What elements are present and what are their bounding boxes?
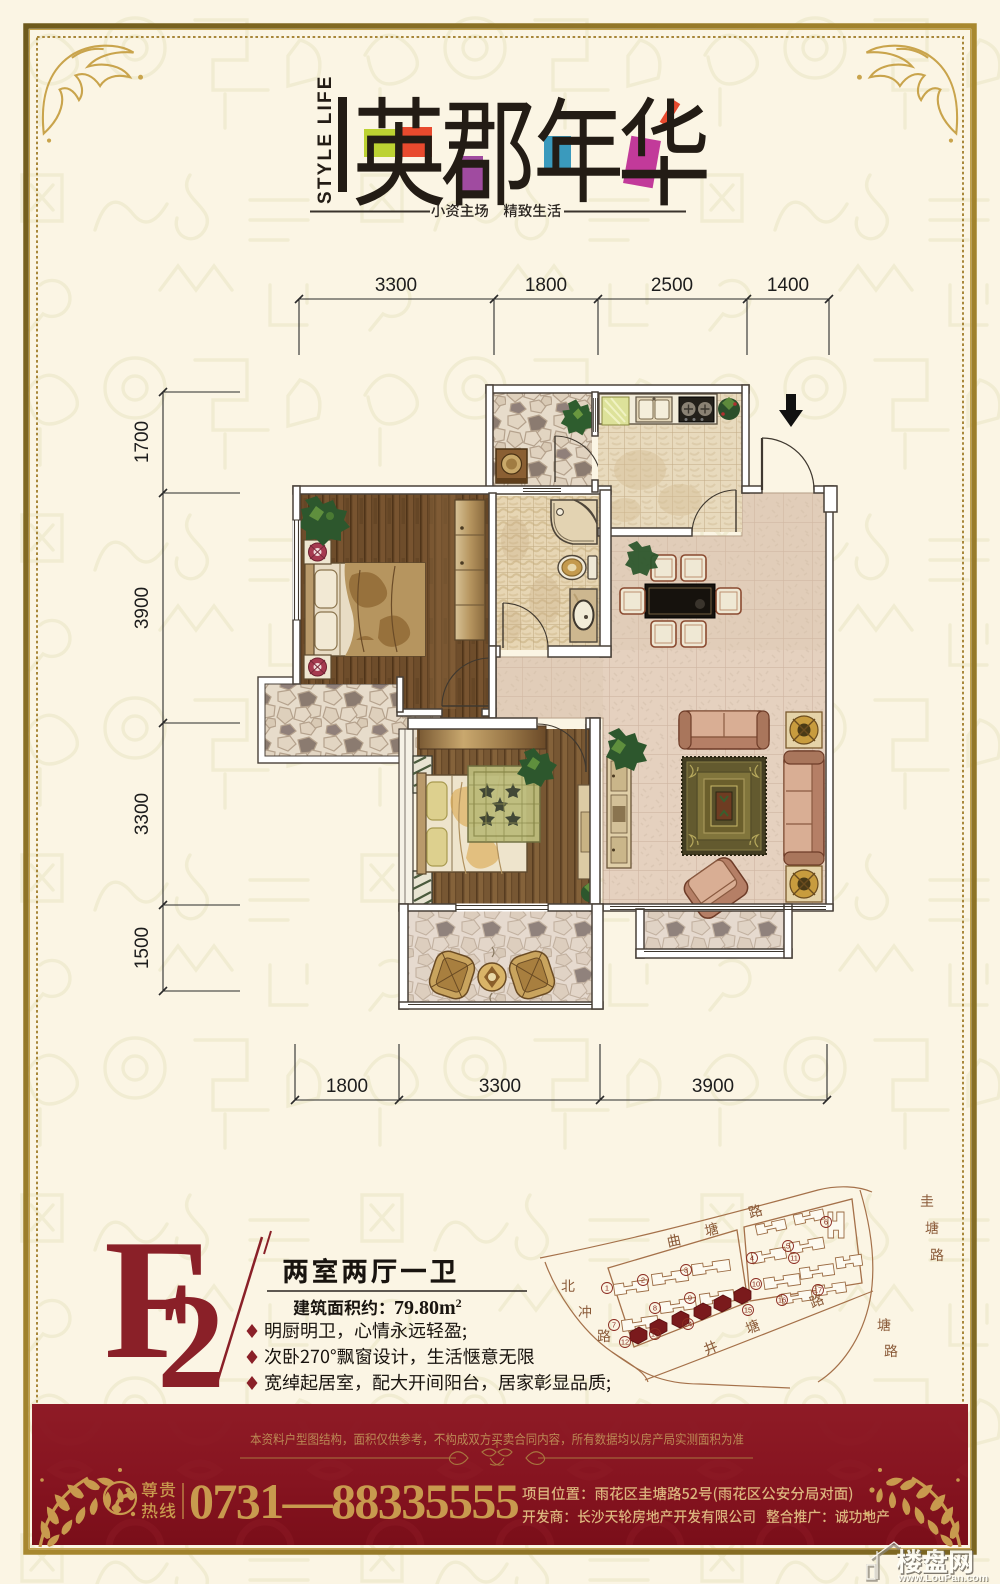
- svg-text:17: 17: [814, 1286, 822, 1295]
- svg-text:2500: 2500: [651, 275, 693, 296]
- svg-text:1700: 1700: [132, 421, 153, 463]
- svg-text:STYLE LIFE: STYLE LIFE: [315, 74, 336, 204]
- svg-text:3300: 3300: [132, 793, 153, 835]
- svg-text:www.LouPan.com: www.LouPan.com: [897, 1572, 988, 1584]
- svg-text:15: 15: [744, 1306, 752, 1315]
- svg-text:1800: 1800: [525, 275, 567, 296]
- svg-text:11: 11: [790, 1254, 798, 1263]
- svg-text:10: 10: [752, 1280, 760, 1289]
- svg-text:3300: 3300: [479, 1076, 521, 1097]
- svg-text:0731—88335555: 0731—88335555: [189, 1473, 519, 1529]
- svg-text:5: 5: [786, 1242, 790, 1251]
- svg-text:3: 3: [684, 1266, 688, 1275]
- svg-text:6: 6: [824, 1218, 828, 1227]
- svg-text:16: 16: [778, 1296, 786, 1305]
- svg-text:13: 13: [651, 1330, 659, 1339]
- svg-text:3900: 3900: [692, 1076, 734, 1097]
- svg-text:8: 8: [653, 1304, 657, 1313]
- svg-text:1400: 1400: [767, 275, 809, 296]
- svg-text:3300: 3300: [375, 275, 417, 296]
- svg-text:3900: 3900: [132, 587, 153, 629]
- svg-text:2: 2: [157, 1267, 225, 1417]
- svg-text:14: 14: [684, 1320, 692, 1329]
- svg-text:9: 9: [688, 1294, 692, 1303]
- svg-text:1: 1: [605, 1284, 609, 1293]
- svg-text:1800: 1800: [326, 1076, 368, 1097]
- svg-text:4: 4: [750, 1254, 754, 1263]
- svg-text:1500: 1500: [132, 927, 153, 969]
- svg-text:7: 7: [612, 1321, 616, 1330]
- svg-text:79.80m2: 79.80m2: [394, 1296, 462, 1319]
- svg-text:12: 12: [621, 1338, 629, 1347]
- svg-text:2: 2: [641, 1276, 645, 1285]
